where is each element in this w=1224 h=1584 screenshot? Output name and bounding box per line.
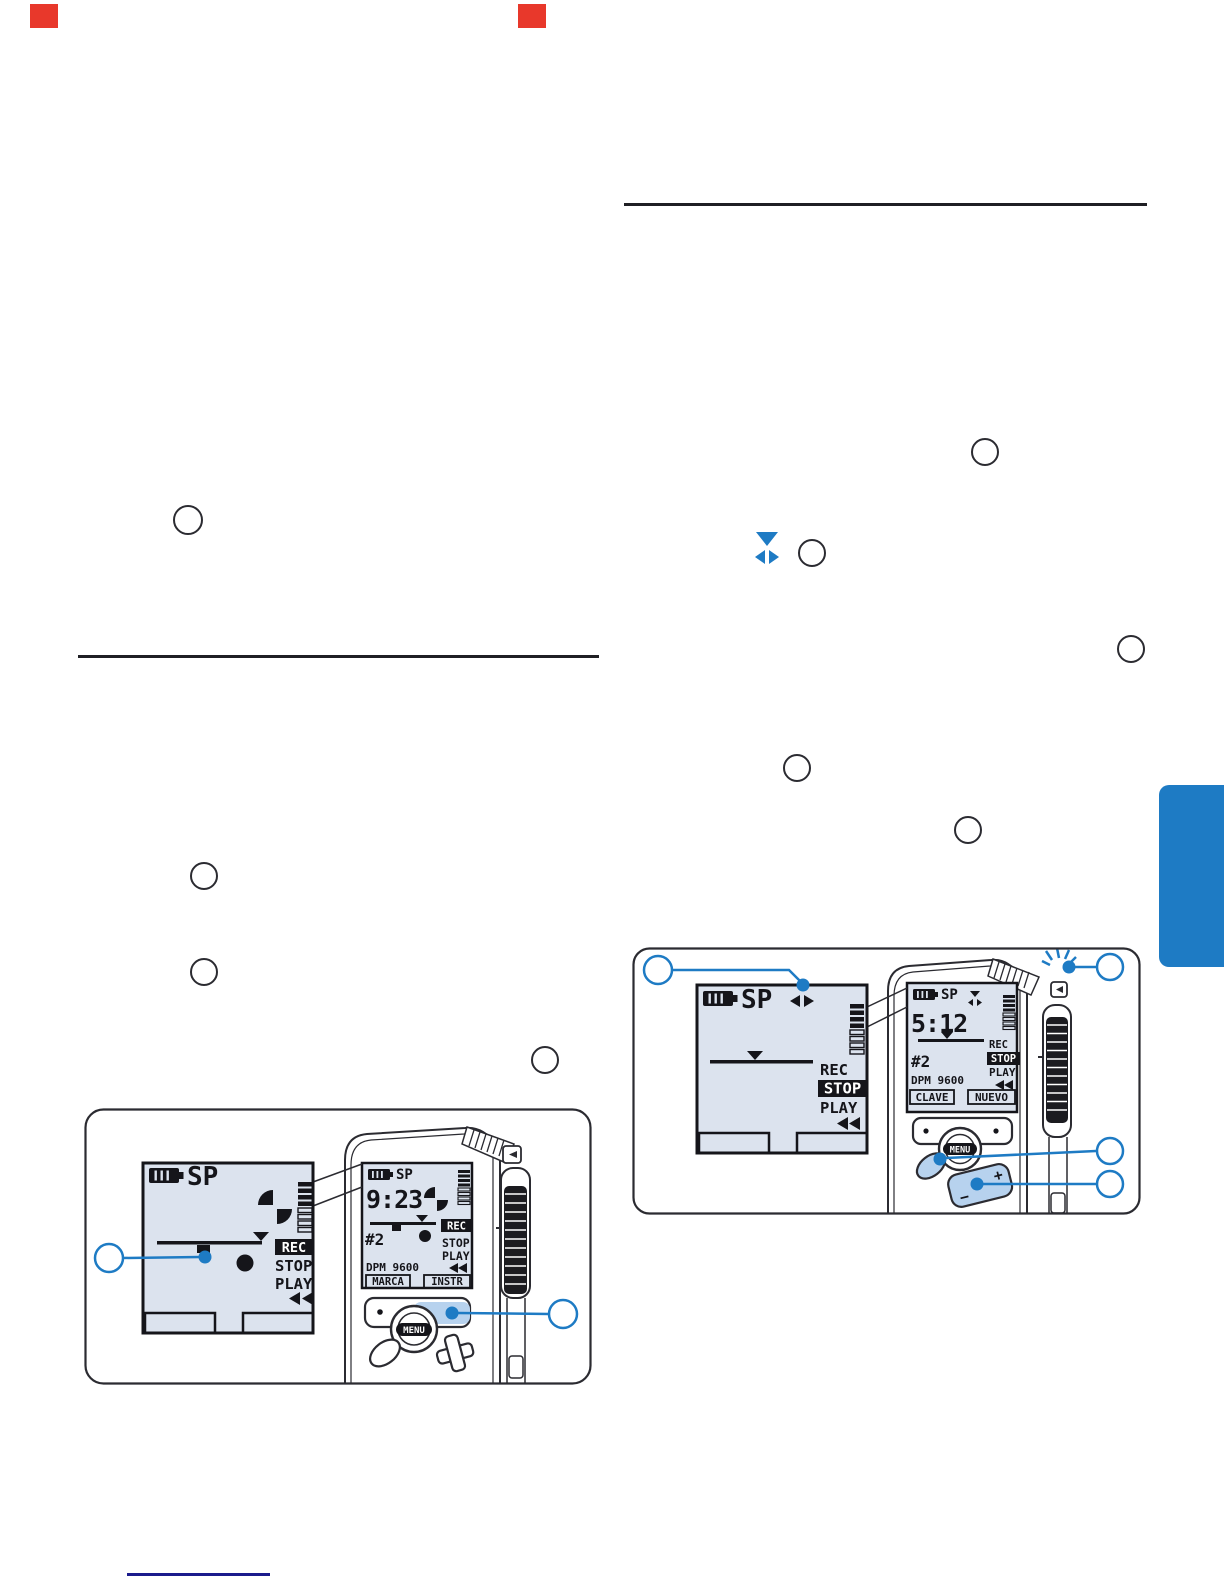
softkey-right: INSTR [431, 1276, 463, 1288]
record-mode: SP [187, 1162, 218, 1192]
model-name: DPM 9600 [366, 1261, 419, 1274]
index-mark [392, 1225, 401, 1231]
step-callout-circle [190, 958, 218, 986]
callout-dot [199, 1251, 212, 1264]
step-callout-circle [1097, 1138, 1123, 1164]
menu-rec: REC [820, 1061, 848, 1079]
position-track [918, 1039, 984, 1042]
callout-line [123, 1257, 200, 1258]
step-callout-circle [95, 1244, 123, 1272]
elapsed-time: 5:12 [911, 1009, 967, 1038]
menu-stop: STOP [442, 1236, 470, 1250]
step-callout-circle [644, 956, 672, 984]
red-proof-mark-left [30, 4, 58, 28]
callout-dot [797, 979, 810, 992]
step-callout-circle [798, 539, 826, 567]
step-callout-circle [1097, 1171, 1123, 1197]
menu-stop: STOP [275, 1257, 312, 1275]
section-divider-left-column [78, 655, 599, 658]
menu-rec: REC [989, 1039, 1008, 1051]
step-callout-circle [531, 1046, 559, 1074]
step-callout-circle [971, 438, 999, 466]
record-dot-icon [237, 1255, 254, 1272]
softkey-right: NUEVO [975, 1091, 1008, 1104]
callout-dot [934, 1153, 947, 1166]
menu-play: PLAY [820, 1099, 858, 1117]
led-dot [993, 1128, 998, 1133]
model-name: DPM 9600 [911, 1074, 964, 1087]
position-track [370, 1222, 436, 1225]
battery-icon [368, 1169, 393, 1180]
step-callout-circle [954, 816, 982, 844]
step-callout-circle [190, 862, 218, 890]
figure-panel-right: SP 5:12 #2 [632, 947, 1141, 1215]
record-dot-icon [419, 1230, 431, 1242]
file-number: #2 [365, 1230, 384, 1249]
record-mode: SP [396, 1167, 413, 1183]
menu-rec: REC [282, 1240, 306, 1256]
menu-play: PLAY [442, 1249, 470, 1263]
step-callout-circle [549, 1300, 577, 1328]
record-mode: SP [741, 985, 772, 1015]
section-divider-right-column [624, 203, 1147, 206]
footer-link-underline [127, 1573, 270, 1576]
softkey-left: CLAVE [915, 1091, 948, 1104]
battery-icon [703, 991, 738, 1006]
position-track [710, 1060, 813, 1064]
menu-play: PLAY [989, 1066, 1016, 1079]
record-mode: SP [941, 987, 958, 1003]
step-callout-circle [173, 505, 203, 535]
figure-panel-left: SP 9:23 [84, 1108, 592, 1385]
menu-play: PLAY [275, 1275, 313, 1293]
menu-button-label: MENU [403, 1326, 425, 1336]
step-callout-circle [1117, 635, 1145, 663]
red-proof-mark-right [518, 4, 546, 28]
step-callout-circle [783, 754, 811, 782]
callout-dot [446, 1307, 459, 1320]
manual-page: SP 9:23 [0, 0, 1224, 1584]
menu-stop: STOP [991, 1053, 1016, 1065]
menu-rec: REC [447, 1221, 466, 1233]
language-section-tab [1159, 785, 1224, 967]
led-dot [923, 1128, 928, 1133]
callout-dot [1063, 961, 1076, 974]
callout-line [458, 1313, 549, 1314]
menu-stop: STOP [824, 1080, 861, 1098]
menu-button-label: MENU [950, 1146, 970, 1156]
eol-index-icon [754, 530, 780, 566]
elapsed-time: 9:23 [366, 1185, 422, 1214]
softkey-left: MARCA [372, 1276, 404, 1288]
callout-dot [971, 1178, 984, 1191]
battery-icon [913, 989, 938, 1000]
step-callout-circle [1097, 954, 1123, 980]
position-track [157, 1241, 262, 1245]
file-number: #2 [911, 1052, 930, 1071]
device-lcd-screen: SP 9:23 [362, 1163, 472, 1288]
led-dot [377, 1309, 383, 1315]
battery-icon [149, 1168, 184, 1183]
device-lcd-screen: SP 5:12 #2 [907, 983, 1020, 1112]
